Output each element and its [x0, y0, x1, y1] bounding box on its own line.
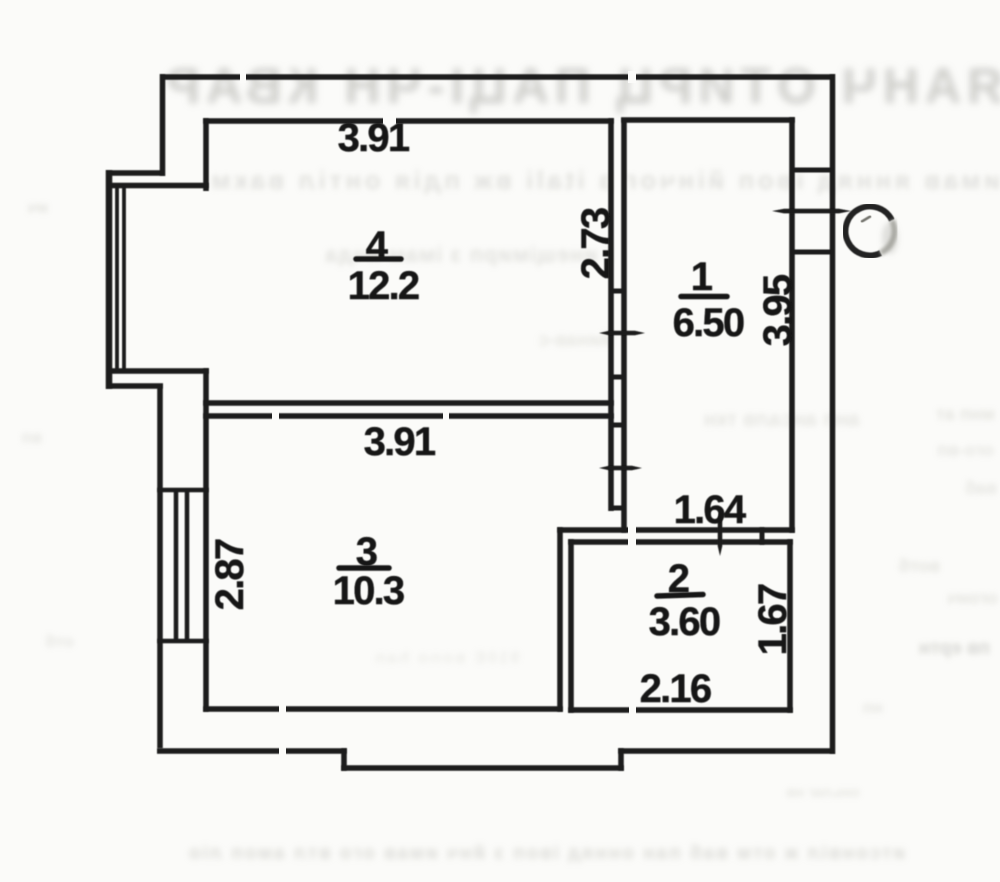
svg-text:6.50: 6.50 — [673, 301, 744, 345]
svg-text:12.2: 12.2 — [348, 264, 419, 308]
svg-text:3.91: 3.91 — [338, 116, 410, 160]
svg-text:2.16: 2.16 — [640, 667, 711, 711]
svg-text:1: 1 — [691, 255, 713, 299]
svg-text:2.73: 2.73 — [574, 208, 618, 279]
svg-text:1.64: 1.64 — [674, 488, 747, 532]
svg-text:1.67: 1.67 — [751, 584, 795, 655]
svg-text:3.91: 3.91 — [364, 420, 436, 464]
svg-text:10.3: 10.3 — [333, 569, 404, 613]
svg-text:3.60: 3.60 — [649, 600, 720, 644]
svg-text:2.87: 2.87 — [208, 539, 252, 610]
svg-text:3.95: 3.95 — [756, 274, 800, 346]
